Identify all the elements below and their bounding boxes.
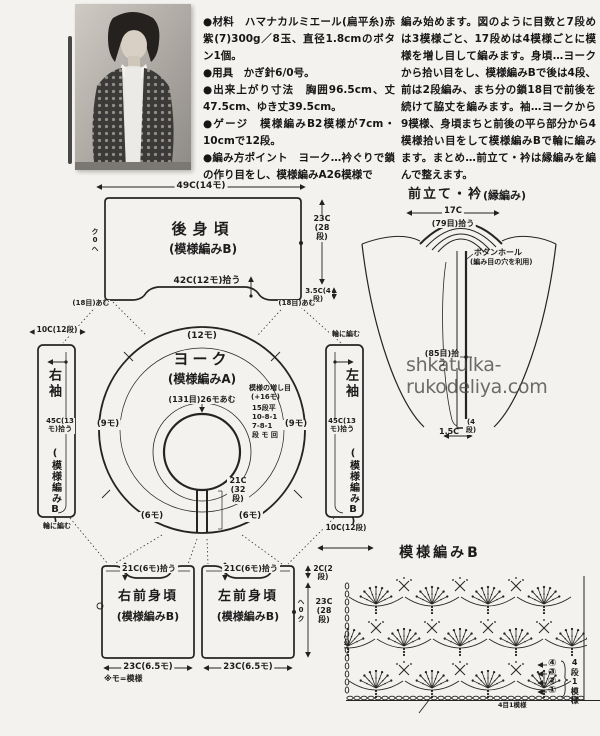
sleeve-right-width-dim: 10C(12段) xyxy=(35,326,80,335)
yoke-increase-title: 模様の増し目 xyxy=(249,384,291,392)
band-width-dim: 1.5C xyxy=(439,427,459,436)
front-right-width-dim: 23C(6.5モ) xyxy=(121,663,174,673)
band-neck-pickup: (79目)拾う xyxy=(430,219,476,228)
yoke-increase-columns: 段 モ 回 xyxy=(252,431,278,439)
watermark: shkatulka-rukodeliya.com xyxy=(406,354,600,398)
yoke-arc-bottom-left-count: (6モ) xyxy=(139,512,165,522)
instructions-text-column: 編み始めます。図のように目数と7段めは3模様ごと、17段めは4模様ごとに模様を増… xyxy=(401,14,596,184)
sleeve-right-pattern: (模様編みB) xyxy=(49,448,61,528)
front-left-edge-mark: ヘ0ク xyxy=(297,598,305,623)
buttonhole-label: ボタンホール xyxy=(474,248,522,257)
yoke-cast-on-note: (131目)26モあむ xyxy=(166,395,237,404)
back-edge-mark: ク0ヘ xyxy=(91,228,99,253)
scan-artifact-bar xyxy=(68,36,72,164)
yoke-slit-dim: 21C(32段) xyxy=(227,477,249,504)
back-side-dim: 23C(28段) xyxy=(309,215,335,242)
back-title: 後身頃 xyxy=(171,221,234,238)
back-corner-right-note: (18目)あむ xyxy=(278,300,316,308)
band-rows-dim: (4段) xyxy=(463,419,479,435)
pattern-abbreviation-note: ※モ=模様 xyxy=(104,674,142,683)
yoke-increase-row1: 15段平 xyxy=(252,404,276,412)
sleeve-left-width-dim: 10C(12段) xyxy=(324,524,369,533)
yoke-pattern-label: (模様編みA) xyxy=(168,373,236,387)
garment-photo-image xyxy=(75,4,191,170)
front-left-width-dim: 23C(6.5モ) xyxy=(221,663,274,673)
sleeve-left-title: 左袖 xyxy=(342,368,357,400)
sleeve-right-round-note: 輪に編む xyxy=(41,522,73,530)
back-pickup-dim: 42C(12モ)拾う xyxy=(172,276,243,286)
fronts-side-dim: 23C(28段) xyxy=(312,598,336,625)
stitch-chart-title: 模様編みB xyxy=(399,545,481,561)
yoke-arc-right-count: (9モ) xyxy=(283,420,309,430)
back-corner-left-note: (18目)あむ xyxy=(72,300,110,308)
front-left-pattern: (模様編みB) xyxy=(217,611,279,624)
yoke-increase-row2: 10-8-1 xyxy=(252,413,277,421)
band-neck-width-dim: 17C xyxy=(442,207,464,217)
yoke-arc-bottom-right-count: (6モ) xyxy=(237,512,263,522)
yoke-increase-row3: 7-8-1 xyxy=(252,422,272,430)
materials-text-column: ●材料 ハマナカルミエール(扁平糸)赤紫(7)300g／8玉、直径1.8cmのボ… xyxy=(203,14,395,184)
yoke-increase-total: (+16モ) xyxy=(251,393,280,401)
sleeve-left-pattern: (模様編みB) xyxy=(347,448,359,528)
yoke-title: ヨーク xyxy=(173,351,230,368)
buttonhole-note: (編み目の穴を利用) xyxy=(470,258,532,266)
front-left-pickup-dim: 21C(6モ)拾う xyxy=(222,564,280,573)
band-method: (縁編み) xyxy=(483,190,526,203)
fronts-side-top-dim: 2C(2段) xyxy=(312,565,334,582)
sleeve-right-pickup: 45C(13モ)拾う xyxy=(45,418,75,434)
front-left-title: 左前身頃 xyxy=(218,590,278,605)
sleeve-right-title: 右袖 xyxy=(45,368,60,400)
sleeve-left-pickup: 45C(13モ)拾う xyxy=(327,418,357,434)
front-right-pattern: (模様編みB) xyxy=(117,611,179,624)
stitch-stitch-repeat-note: 4目1模様 xyxy=(498,702,527,709)
pattern-page: ●材料 ハマナカルミエール(扁平糸)赤紫(7)300g／8玉、直径1.8cmのボ… xyxy=(0,0,600,736)
stitch-row-repeat-note: 4段1模様 xyxy=(570,658,579,705)
band-title: 前立て・衿 xyxy=(408,188,483,203)
back-pattern-label: (模様編みB) xyxy=(169,243,237,257)
yoke-arc-top-count: (12モ) xyxy=(185,331,219,341)
stitch-chart-motifs xyxy=(321,577,599,700)
garment-photo xyxy=(75,4,191,170)
back-width-dim: 49C(14モ) xyxy=(175,181,228,191)
front-right-pickup-dim: 21C(6モ)拾う xyxy=(120,564,178,573)
stitch-row-number-1: ① xyxy=(548,686,556,695)
front-right-title: 右前身頃 xyxy=(118,590,178,605)
sleeve-left-round-note: 輪に編む xyxy=(330,330,362,338)
yoke-arc-left-count: (9モ) xyxy=(95,420,121,430)
